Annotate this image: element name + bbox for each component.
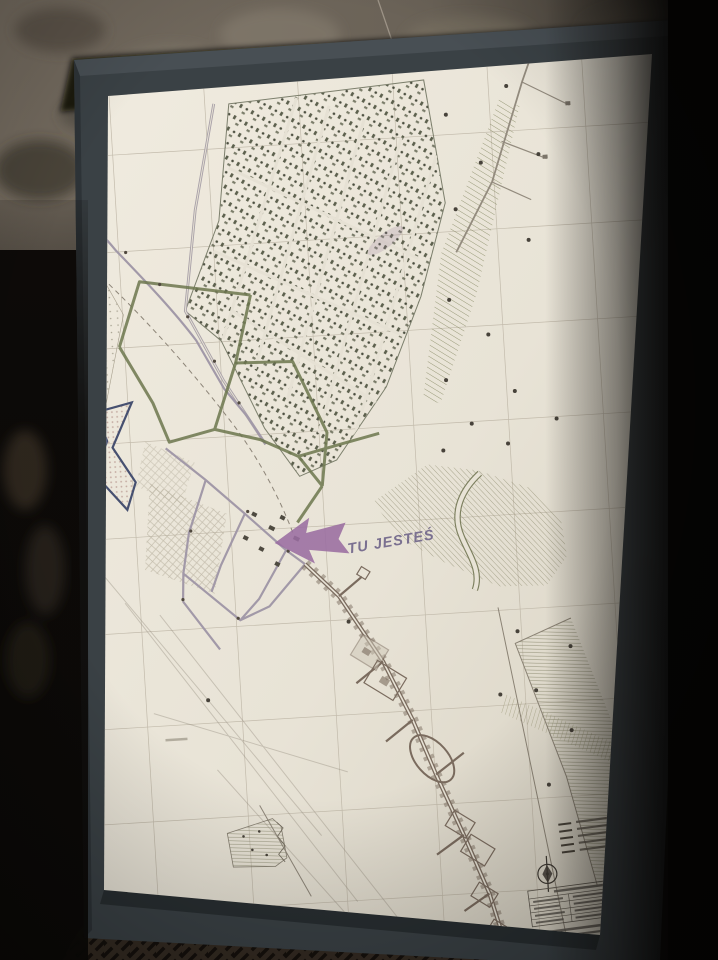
photo-of-framed-map: TU JESTEŚ <box>0 0 718 960</box>
vignette <box>0 0 718 960</box>
photo-canvas: TU JESTEŚ <box>0 0 718 960</box>
